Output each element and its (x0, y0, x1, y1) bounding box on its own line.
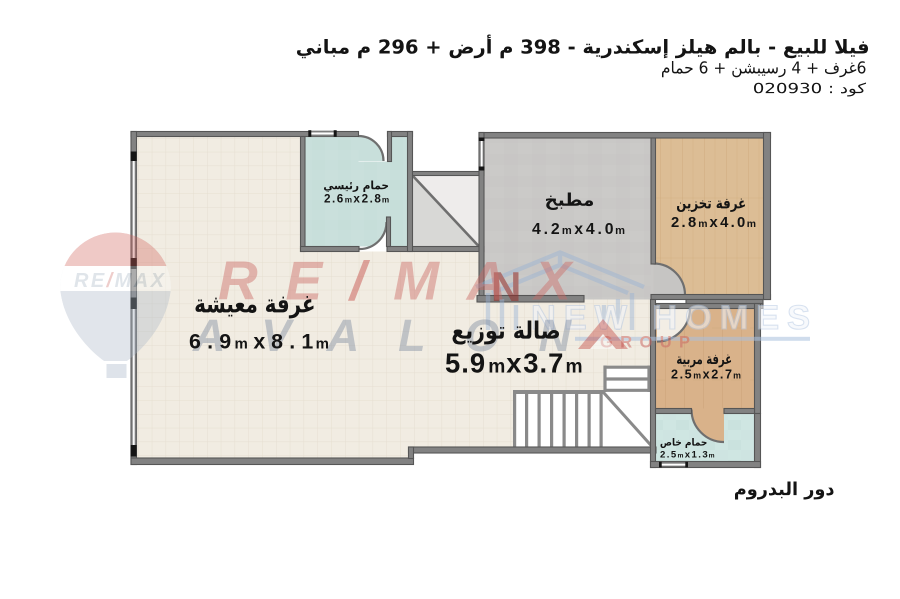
svg-text:m: m (733, 371, 741, 381)
svg-text:m: m (709, 453, 715, 460)
svg-text:8.1: 8.1 (271, 330, 319, 354)
svg-text:x: x (574, 221, 583, 238)
svg-text:x: x (506, 348, 522, 379)
svg-text:m: m (488, 357, 505, 378)
svg-text:m: m (345, 196, 352, 205)
svg-text:3.7: 3.7 (523, 348, 564, 379)
svg-text:2.5: 2.5 (671, 368, 693, 382)
svg-text:x: x (710, 215, 719, 231)
svg-text:4.2: 4.2 (532, 221, 563, 238)
svg-text:m: m (316, 336, 329, 353)
svg-text:1.3: 1.3 (692, 450, 710, 461)
svg-text:m: m (678, 453, 684, 460)
svg-text:x: x (253, 330, 265, 354)
svg-text:2.7: 2.7 (711, 368, 733, 382)
svg-text:4.0: 4.0 (586, 221, 617, 238)
svg-text:m: m (698, 219, 707, 230)
svg-text:x: x (685, 450, 691, 461)
svg-text:m: m (382, 196, 389, 205)
svg-text:m: m (747, 219, 756, 230)
svg-text:2.5: 2.5 (660, 450, 678, 461)
svg-text:6.9: 6.9 (189, 330, 237, 354)
svg-text:RE/MAX: RE/MAX (74, 270, 166, 292)
svg-text:m: m (562, 225, 572, 237)
svg-text:m: m (566, 357, 583, 378)
svg-text:2.6: 2.6 (324, 193, 345, 206)
svg-text:5.9: 5.9 (445, 348, 486, 379)
svg-text:m: m (693, 371, 701, 381)
svg-text:m: m (235, 336, 248, 353)
svg-text:x: x (353, 193, 360, 206)
svg-text:x: x (703, 368, 710, 382)
svg-text:m: m (615, 225, 625, 237)
svg-text:2.8: 2.8 (362, 193, 383, 206)
svg-text:4.0: 4.0 (720, 215, 748, 231)
svg-text:2.8: 2.8 (671, 215, 699, 231)
svg-text:NEW HOMES: NEW HOMES (531, 299, 810, 337)
